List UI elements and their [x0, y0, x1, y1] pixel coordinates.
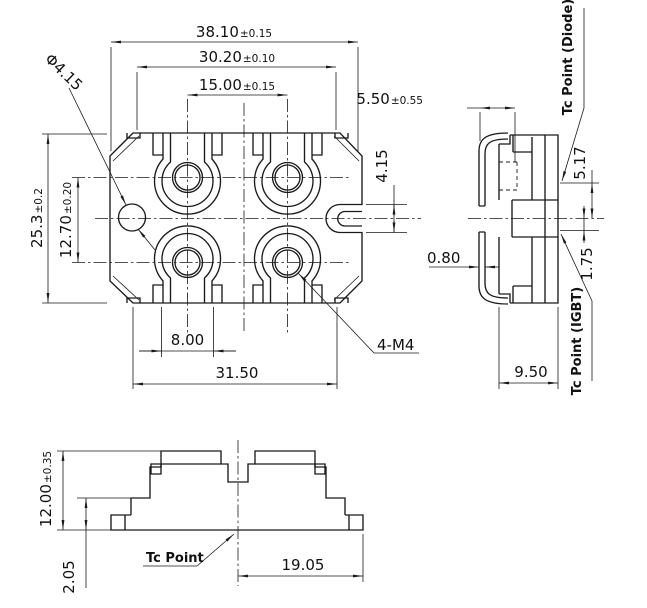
tc-point-label: Tc Point: [143, 534, 234, 566]
svg-text:30.20±0.10: 30.20±0.10: [199, 48, 275, 66]
centerlines: [72, 99, 421, 333]
dim-body-thickness: 9.50: [499, 307, 558, 389]
svg-text:12.70±0.20: 12.70±0.20: [57, 182, 75, 258]
svg-text:Tc Point (Diode): Tc Point (Diode): [561, 0, 576, 115]
svg-text:8.00: 8.00: [171, 331, 204, 349]
svg-text:9.50: 9.50: [514, 363, 547, 381]
lower-lead: [479, 232, 508, 304]
dim-tc-diode-offset: 5.17: [560, 146, 599, 218]
svg-text:5.17: 5.17: [571, 146, 589, 179]
dim-terminal-pitch-x: 15.00±0.15: [188, 76, 288, 95]
package-outline-drawing: 38.10±0.15 30.20±0.10 15.00±0.15 Φ4.15 2…: [0, 0, 647, 608]
mount-hole: [119, 204, 146, 231]
svg-text:2.05: 2.05: [60, 560, 78, 593]
svg-text:15.00±0.15: 15.00±0.15: [199, 76, 275, 94]
front-view: 12.00±0.35 2.05 Tc Point 19.05: [37, 440, 363, 594]
svg-text:Tc Point: Tc Point: [146, 551, 204, 566]
top-view: 38.10±0.15 30.20±0.10 15.00±0.15 Φ4.15 2…: [28, 23, 421, 389]
dim-base-height: 2.05: [60, 498, 131, 594]
dim-terminal-pitch-y: 12.70±0.20: [57, 178, 78, 263]
svg-text:4-M4: 4-M4: [377, 336, 414, 354]
svg-text:Tc Point (IGBT): Tc Point (IGBT): [570, 287, 585, 395]
svg-text:Φ4.15: Φ4.15: [41, 50, 86, 94]
svg-text:5.50±0.55: 5.50±0.55: [356, 90, 423, 108]
drawing-page: 38.10±0.15 30.20±0.10 15.00±0.15 Φ4.15 2…: [0, 0, 647, 608]
side-interior-lines: [513, 135, 545, 303]
dim-side-tab: 4.15: [366, 149, 407, 232]
dim-lead-thickness: 0.80: [427, 249, 499, 267]
dim-tc-igbt-offset: 1.75: [560, 206, 599, 281]
hidden-hole-lines: [499, 162, 517, 190]
dim-flange-span: 31.50: [133, 307, 337, 389]
svg-text:38.10±0.15: 38.10±0.15: [196, 23, 272, 41]
svg-text:25.3±0.2: 25.3±0.2: [28, 188, 46, 248]
svg-text:4.15: 4.15: [373, 149, 391, 182]
dim-center-to-edge: 19.05: [238, 534, 363, 582]
svg-text:19.05: 19.05: [282, 556, 325, 574]
front-profile-outline: [111, 451, 363, 530]
svg-text:12.00±0.35: 12.00±0.35: [37, 451, 55, 527]
svg-text:0.80: 0.80: [427, 249, 460, 267]
module-body-outline: [110, 133, 362, 303]
chamfer-inner-lines: [113, 136, 359, 300]
dim-overall-height: 12.00±0.35: [37, 451, 161, 530]
svg-text:31.50: 31.50: [216, 364, 259, 382]
side-body-outline: [499, 135, 558, 303]
